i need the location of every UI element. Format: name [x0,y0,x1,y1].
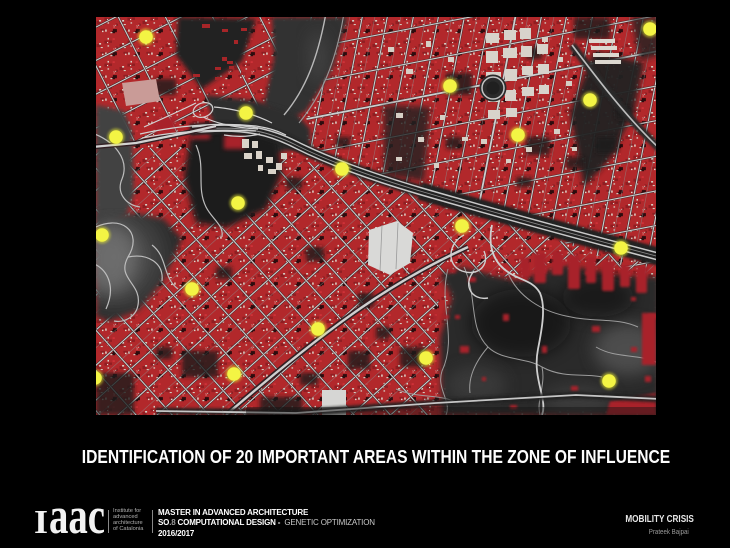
svg-text:aac: aac [49,498,105,540]
svg-text:I: I [34,504,48,540]
